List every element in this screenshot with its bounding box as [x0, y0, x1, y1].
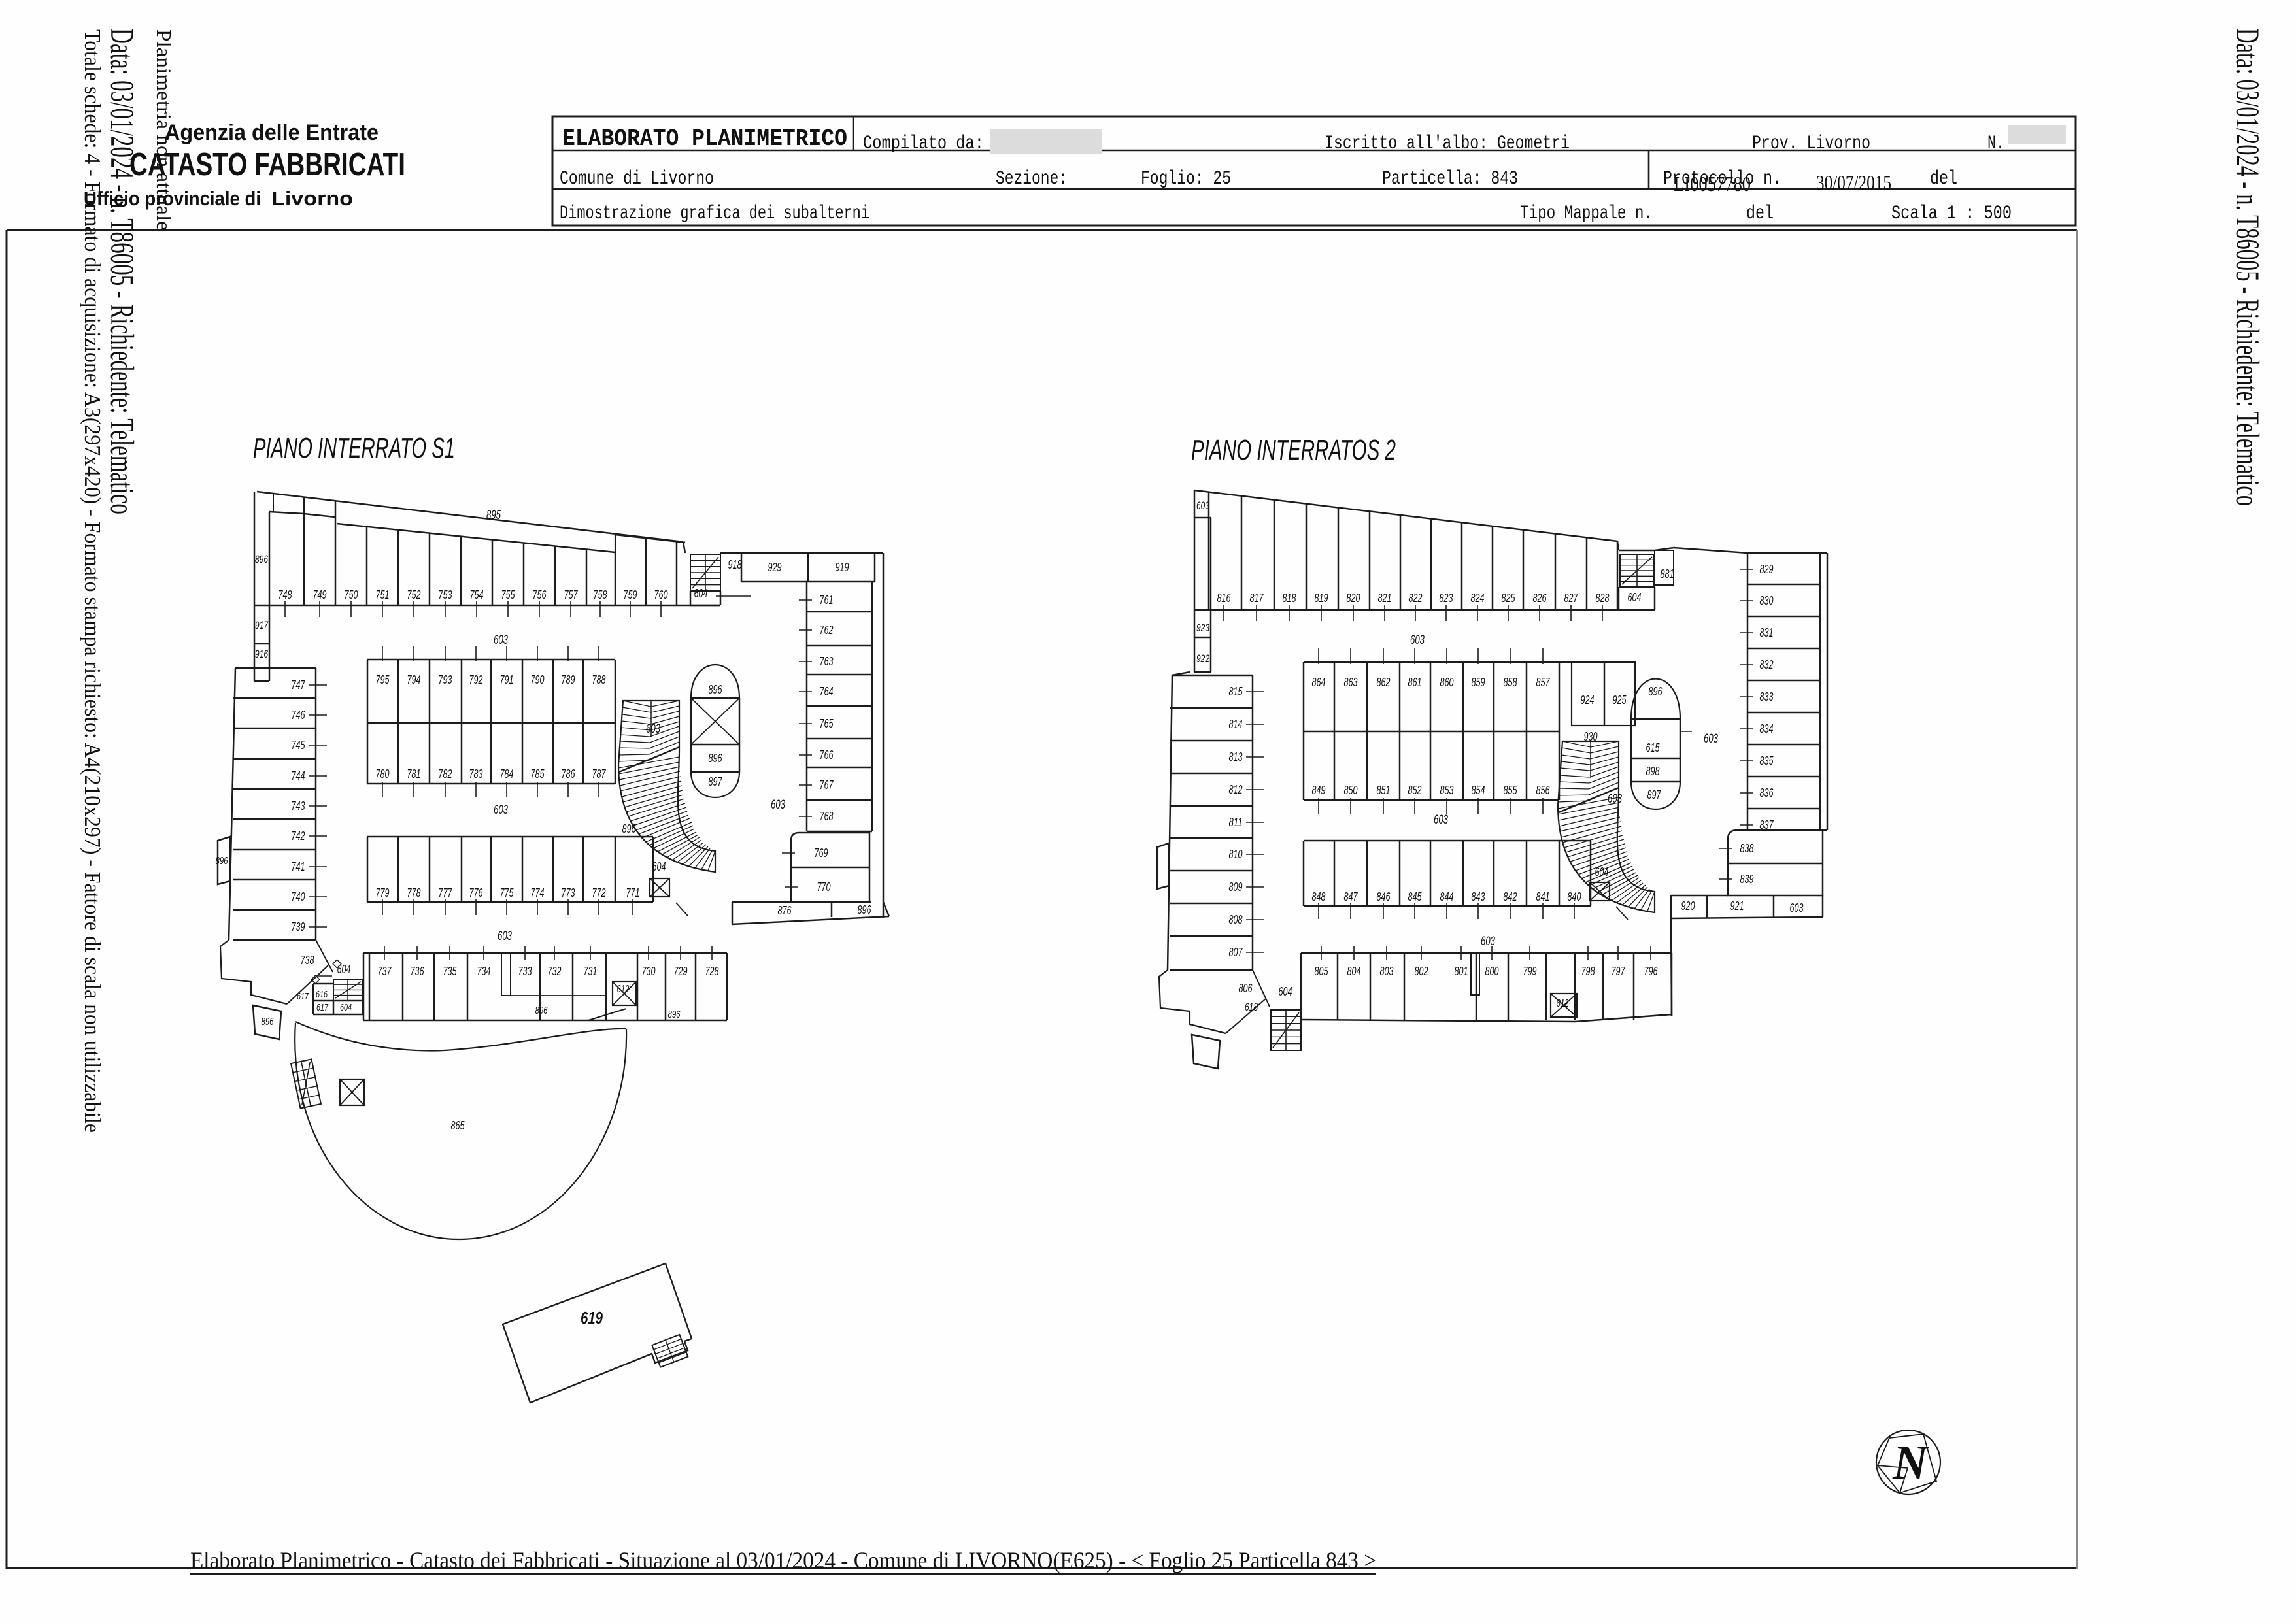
svg-text:896: 896: [216, 856, 228, 867]
svg-text:603: 603: [1481, 935, 1495, 948]
svg-text:750: 750: [345, 588, 358, 601]
svg-text:773: 773: [562, 886, 575, 899]
svg-text:863: 863: [1344, 676, 1358, 689]
svg-text:PIANO INTERRATO S1: PIANO INTERRATO S1: [253, 432, 455, 464]
svg-text:742: 742: [292, 829, 305, 843]
svg-text:792: 792: [469, 673, 483, 686]
svg-text:30/07/2015: 30/07/2015: [1816, 171, 1891, 194]
svg-text:604: 604: [1279, 985, 1292, 998]
svg-text:Particella: 843: Particella: 843: [1382, 168, 1518, 190]
svg-text:809: 809: [1229, 880, 1243, 894]
svg-text:813: 813: [1229, 750, 1243, 763]
svg-text:794: 794: [407, 673, 421, 686]
svg-text:780: 780: [376, 767, 390, 780]
svg-text:775: 775: [500, 886, 515, 899]
svg-text:798: 798: [1581, 965, 1595, 978]
svg-text:791: 791: [500, 673, 514, 686]
svg-text:del: del: [1746, 203, 1774, 225]
svg-text:751: 751: [376, 588, 390, 601]
svg-text:754: 754: [470, 588, 484, 601]
svg-text:759: 759: [624, 588, 637, 601]
svg-text:787: 787: [592, 767, 607, 780]
svg-text:778: 778: [407, 886, 421, 899]
svg-text:612: 612: [1557, 998, 1569, 1009]
svg-text:772: 772: [592, 886, 606, 899]
svg-text:861: 861: [1408, 676, 1422, 689]
svg-text:836: 836: [1760, 786, 1774, 799]
svg-text:738: 738: [301, 954, 314, 967]
svg-text:843: 843: [1472, 890, 1485, 903]
svg-text:827: 827: [1564, 592, 1579, 605]
svg-text:739: 739: [292, 920, 305, 933]
svg-text:785: 785: [531, 767, 545, 780]
svg-text:735: 735: [443, 965, 458, 978]
svg-text:617: 617: [316, 1002, 328, 1013]
svg-text:730: 730: [642, 965, 656, 978]
svg-text:603: 603: [494, 633, 508, 647]
svg-text:834: 834: [1760, 722, 1774, 735]
svg-text:604: 604: [340, 1002, 352, 1013]
svg-text:918: 918: [728, 558, 742, 571]
svg-text:806: 806: [1239, 982, 1253, 995]
svg-text:929: 929: [768, 561, 782, 574]
svg-text:829: 829: [1760, 563, 1774, 576]
svg-text:758: 758: [594, 588, 607, 601]
svg-text:810: 810: [1229, 848, 1243, 861]
svg-text:Foglio: 25: Foglio: 25: [1141, 168, 1231, 190]
svg-text:769: 769: [815, 846, 828, 860]
svg-text:858: 858: [1504, 676, 1517, 689]
svg-text:816: 816: [1217, 592, 1232, 605]
svg-text:776: 776: [469, 886, 484, 899]
svg-text:797: 797: [1612, 965, 1626, 978]
svg-text:801: 801: [1455, 965, 1468, 978]
svg-text:856: 856: [1536, 784, 1551, 797]
svg-text:603: 603: [1790, 901, 1804, 914]
svg-text:789: 789: [562, 673, 575, 686]
svg-text:783: 783: [469, 767, 483, 780]
svg-text:603: 603: [771, 798, 785, 812]
svg-text:732: 732: [548, 965, 562, 978]
svg-text:604: 604: [694, 587, 708, 600]
svg-text:Agenzia delle Entrate: Agenzia delle Entrate: [165, 120, 379, 145]
svg-text:734: 734: [477, 965, 491, 978]
svg-text:746: 746: [292, 709, 306, 722]
svg-text:814: 814: [1229, 718, 1243, 731]
svg-text:896: 896: [262, 1016, 274, 1028]
svg-text:763: 763: [820, 655, 834, 668]
svg-text:807: 807: [1229, 946, 1243, 959]
svg-text:896: 896: [1649, 685, 1663, 698]
svg-text:737: 737: [378, 965, 392, 978]
svg-text:821: 821: [1378, 592, 1392, 605]
svg-text:898: 898: [1646, 765, 1660, 778]
svg-text:749: 749: [313, 588, 327, 601]
svg-text:771: 771: [626, 886, 640, 899]
svg-text:Iscritto all'albo: Geometri: Iscritto all'albo: Geometri: [1325, 133, 1570, 155]
svg-text:833: 833: [1760, 690, 1774, 703]
svg-text:762: 762: [820, 624, 834, 637]
svg-text:756: 756: [533, 588, 547, 601]
svg-text:838: 838: [1740, 842, 1754, 855]
svg-text:743: 743: [292, 799, 305, 812]
svg-text:832: 832: [1760, 658, 1774, 671]
svg-text:857: 857: [1536, 676, 1551, 689]
svg-text:744: 744: [292, 769, 305, 782]
svg-text:925: 925: [1613, 694, 1627, 707]
svg-text:812: 812: [1229, 783, 1243, 796]
svg-text:770: 770: [817, 880, 831, 894]
svg-text:921: 921: [1730, 899, 1744, 912]
svg-text:Planimetria non attuale: Planimetria non attuale: [152, 29, 175, 231]
svg-text:896: 896: [255, 553, 268, 565]
svg-text:852: 852: [1408, 784, 1422, 797]
svg-text:Data: 03/01/2024 - n. T86005 -: Data: 03/01/2024 - n. T86005 - Richieden…: [2229, 28, 2265, 506]
svg-text:603: 603: [1410, 633, 1425, 647]
svg-text:Totale schede: 4 - Formato di: Totale schede: 4 - Formato di acquisizio…: [80, 29, 105, 1133]
svg-text:733: 733: [518, 965, 532, 978]
svg-text:779: 779: [376, 886, 390, 899]
svg-text:919: 919: [836, 561, 849, 574]
svg-text:811: 811: [1229, 816, 1243, 829]
svg-text:896: 896: [622, 822, 637, 835]
svg-text:del: del: [1930, 168, 1957, 190]
svg-text:835: 835: [1760, 754, 1774, 767]
svg-text:842: 842: [1504, 890, 1517, 903]
svg-text:603: 603: [1704, 732, 1718, 746]
svg-text:603: 603: [498, 929, 512, 943]
svg-text:817: 817: [1250, 592, 1264, 605]
svg-text:844: 844: [1440, 890, 1454, 903]
svg-text:841: 841: [1536, 890, 1550, 903]
svg-text:619: 619: [581, 1308, 603, 1328]
svg-text:802: 802: [1415, 965, 1428, 978]
svg-text:808: 808: [1229, 913, 1243, 926]
svg-text:764: 764: [820, 685, 834, 698]
svg-text:820: 820: [1347, 592, 1360, 605]
svg-text:PIANO INTERRATOS 2: PIANO INTERRATOS 2: [1191, 434, 1396, 466]
svg-text:796: 796: [1644, 965, 1659, 978]
svg-text:Comune di Livorno: Comune di Livorno: [560, 168, 714, 190]
svg-text:784: 784: [500, 767, 514, 780]
svg-text:LI0057780: LI0057780: [1674, 172, 1751, 195]
svg-text:896: 896: [858, 903, 872, 916]
svg-text:617: 617: [297, 991, 309, 1002]
svg-text:745: 745: [292, 739, 306, 752]
svg-text:860: 860: [1440, 676, 1454, 689]
svg-text:815: 815: [1229, 685, 1243, 698]
svg-text:839: 839: [1740, 873, 1754, 886]
svg-text:830: 830: [1760, 594, 1774, 607]
svg-text:Tipo Mappale n.: Tipo Mappale n.: [1520, 203, 1653, 225]
svg-text:618: 618: [1245, 1001, 1258, 1013]
svg-text:819: 819: [1315, 592, 1328, 605]
svg-text:848: 848: [1312, 890, 1326, 903]
svg-text:895: 895: [486, 509, 501, 522]
svg-text:793: 793: [439, 673, 452, 686]
svg-text:831: 831: [1760, 626, 1774, 639]
svg-text:916: 916: [255, 648, 268, 660]
svg-text:788: 788: [592, 673, 606, 686]
svg-text:881: 881: [1661, 567, 1674, 580]
svg-text:804: 804: [1347, 965, 1361, 978]
svg-text:923: 923: [1196, 622, 1209, 634]
svg-text:Livorno: Livorno: [271, 187, 353, 210]
svg-text:805: 805: [1315, 965, 1329, 978]
svg-text:755: 755: [501, 588, 516, 601]
svg-text:825: 825: [1502, 592, 1516, 605]
svg-text:782: 782: [439, 767, 452, 780]
svg-text:Prov. Livorno: Prov. Livorno: [1752, 133, 1870, 155]
svg-text:N: N: [1892, 1436, 1929, 1490]
svg-text:855: 855: [1504, 784, 1518, 797]
svg-text:897: 897: [1647, 788, 1662, 801]
svg-text:768: 768: [820, 810, 834, 823]
svg-text:854: 854: [1472, 784, 1485, 797]
svg-text:859: 859: [1472, 676, 1485, 689]
svg-text:767: 767: [820, 778, 834, 792]
svg-text:Dimostrazione grafica dei suba: Dimostrazione grafica dei subalterni: [560, 203, 869, 225]
svg-text:896: 896: [709, 752, 723, 765]
svg-text:760: 760: [654, 588, 668, 601]
svg-text:615: 615: [1646, 741, 1661, 754]
svg-text:845: 845: [1408, 890, 1423, 903]
svg-text:740: 740: [292, 890, 305, 903]
svg-text:826: 826: [1533, 592, 1547, 605]
svg-text:847: 847: [1344, 890, 1359, 903]
svg-text:818: 818: [1283, 592, 1296, 605]
svg-text:604: 604: [652, 860, 666, 873]
svg-text:Data: 03/01/2024 - n. T86005 -: Data: 03/01/2024 - n. T86005 - Richieden…: [103, 28, 140, 514]
svg-text:603: 603: [494, 803, 508, 817]
svg-text:603: 603: [1608, 792, 1622, 806]
svg-text:Scala 1 : 500: Scala 1 : 500: [1891, 203, 2012, 225]
svg-text:Sezione:: Sezione:: [996, 168, 1068, 190]
svg-text:896: 896: [535, 1005, 548, 1016]
svg-text:616: 616: [316, 989, 328, 1000]
svg-text:803: 803: [1380, 965, 1394, 978]
svg-text:853: 853: [1440, 784, 1454, 797]
svg-text:795: 795: [376, 673, 390, 686]
svg-text:849: 849: [1312, 784, 1326, 797]
svg-text:753: 753: [439, 588, 452, 601]
svg-text:917: 917: [255, 619, 268, 631]
svg-text:Elaborato Planimetrico - Catas: Elaborato Planimetrico - Catasto dei Fab…: [190, 1547, 1376, 1573]
svg-text:603: 603: [1434, 813, 1448, 827]
svg-text:766: 766: [820, 748, 834, 761]
svg-text:924: 924: [1581, 694, 1595, 707]
svg-text:828: 828: [1596, 592, 1610, 605]
svg-text:736: 736: [411, 965, 425, 978]
svg-text:824: 824: [1471, 592, 1485, 605]
svg-text:790: 790: [531, 673, 545, 686]
svg-text:612: 612: [617, 984, 630, 995]
svg-text:897: 897: [709, 775, 723, 788]
svg-text:729: 729: [674, 965, 688, 978]
svg-text:604: 604: [1628, 591, 1642, 604]
svg-text:920: 920: [1681, 899, 1695, 912]
svg-text:752: 752: [407, 588, 421, 601]
svg-text:604: 604: [337, 963, 351, 976]
svg-text:823: 823: [1440, 592, 1453, 605]
svg-text:N.: N.: [1987, 133, 2004, 155]
svg-text:774: 774: [531, 886, 545, 899]
svg-text:846: 846: [1377, 890, 1391, 903]
svg-text:603: 603: [646, 722, 660, 736]
svg-text:ELABORATO PLANIMETRICO: ELABORATO PLANIMETRICO: [562, 125, 847, 152]
svg-text:822: 822: [1409, 592, 1423, 605]
svg-text:765: 765: [820, 717, 834, 730]
svg-text:728: 728: [705, 965, 719, 978]
svg-text:741: 741: [292, 860, 305, 873]
svg-text:896: 896: [709, 683, 723, 696]
svg-text:747: 747: [292, 678, 306, 692]
svg-text:864: 864: [1312, 676, 1326, 689]
svg-text:Compilato da:: Compilato da:: [863, 133, 984, 155]
svg-text:922: 922: [1196, 652, 1209, 665]
svg-text:748: 748: [279, 588, 292, 601]
svg-text:777: 777: [439, 886, 453, 899]
svg-text:799: 799: [1523, 965, 1537, 978]
svg-text:781: 781: [407, 767, 421, 780]
svg-text:761: 761: [820, 594, 834, 607]
svg-text:757: 757: [564, 588, 579, 601]
svg-text:800: 800: [1485, 965, 1499, 978]
svg-text:876: 876: [778, 904, 792, 917]
svg-text:865: 865: [451, 1119, 465, 1132]
svg-text:850: 850: [1344, 784, 1358, 797]
svg-text:851: 851: [1377, 784, 1391, 797]
svg-text:603: 603: [1196, 499, 1209, 512]
svg-text:731: 731: [584, 965, 598, 978]
svg-text:896: 896: [668, 1009, 681, 1020]
svg-text:786: 786: [562, 767, 576, 780]
svg-text:840: 840: [1568, 890, 1581, 903]
svg-text:862: 862: [1377, 676, 1391, 689]
